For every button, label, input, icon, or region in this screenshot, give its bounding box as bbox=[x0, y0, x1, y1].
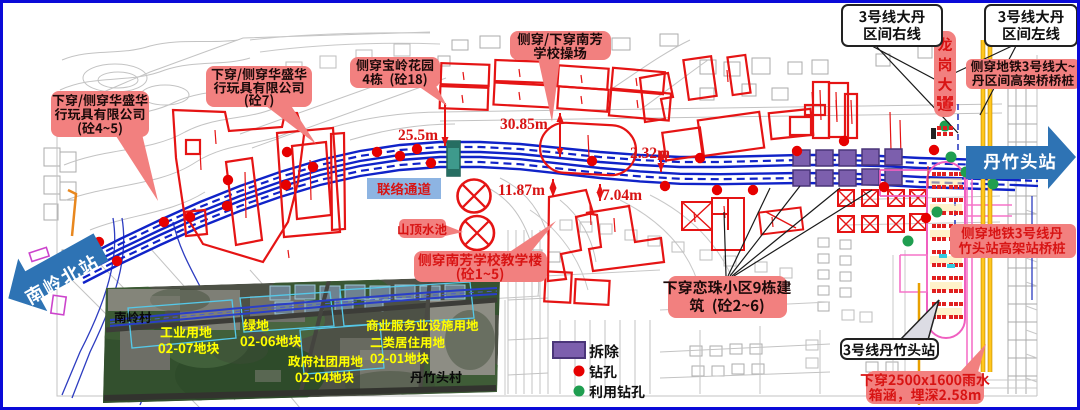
svg-text:30.85m: 30.85m bbox=[500, 116, 548, 133]
svg-text:2.32m: 2.32m bbox=[630, 145, 670, 162]
svg-text:7.04m: 7.04m bbox=[602, 187, 642, 204]
svg-text:11.87m: 11.87m bbox=[498, 182, 545, 199]
svg-text:25.5m: 25.5m bbox=[398, 127, 438, 144]
